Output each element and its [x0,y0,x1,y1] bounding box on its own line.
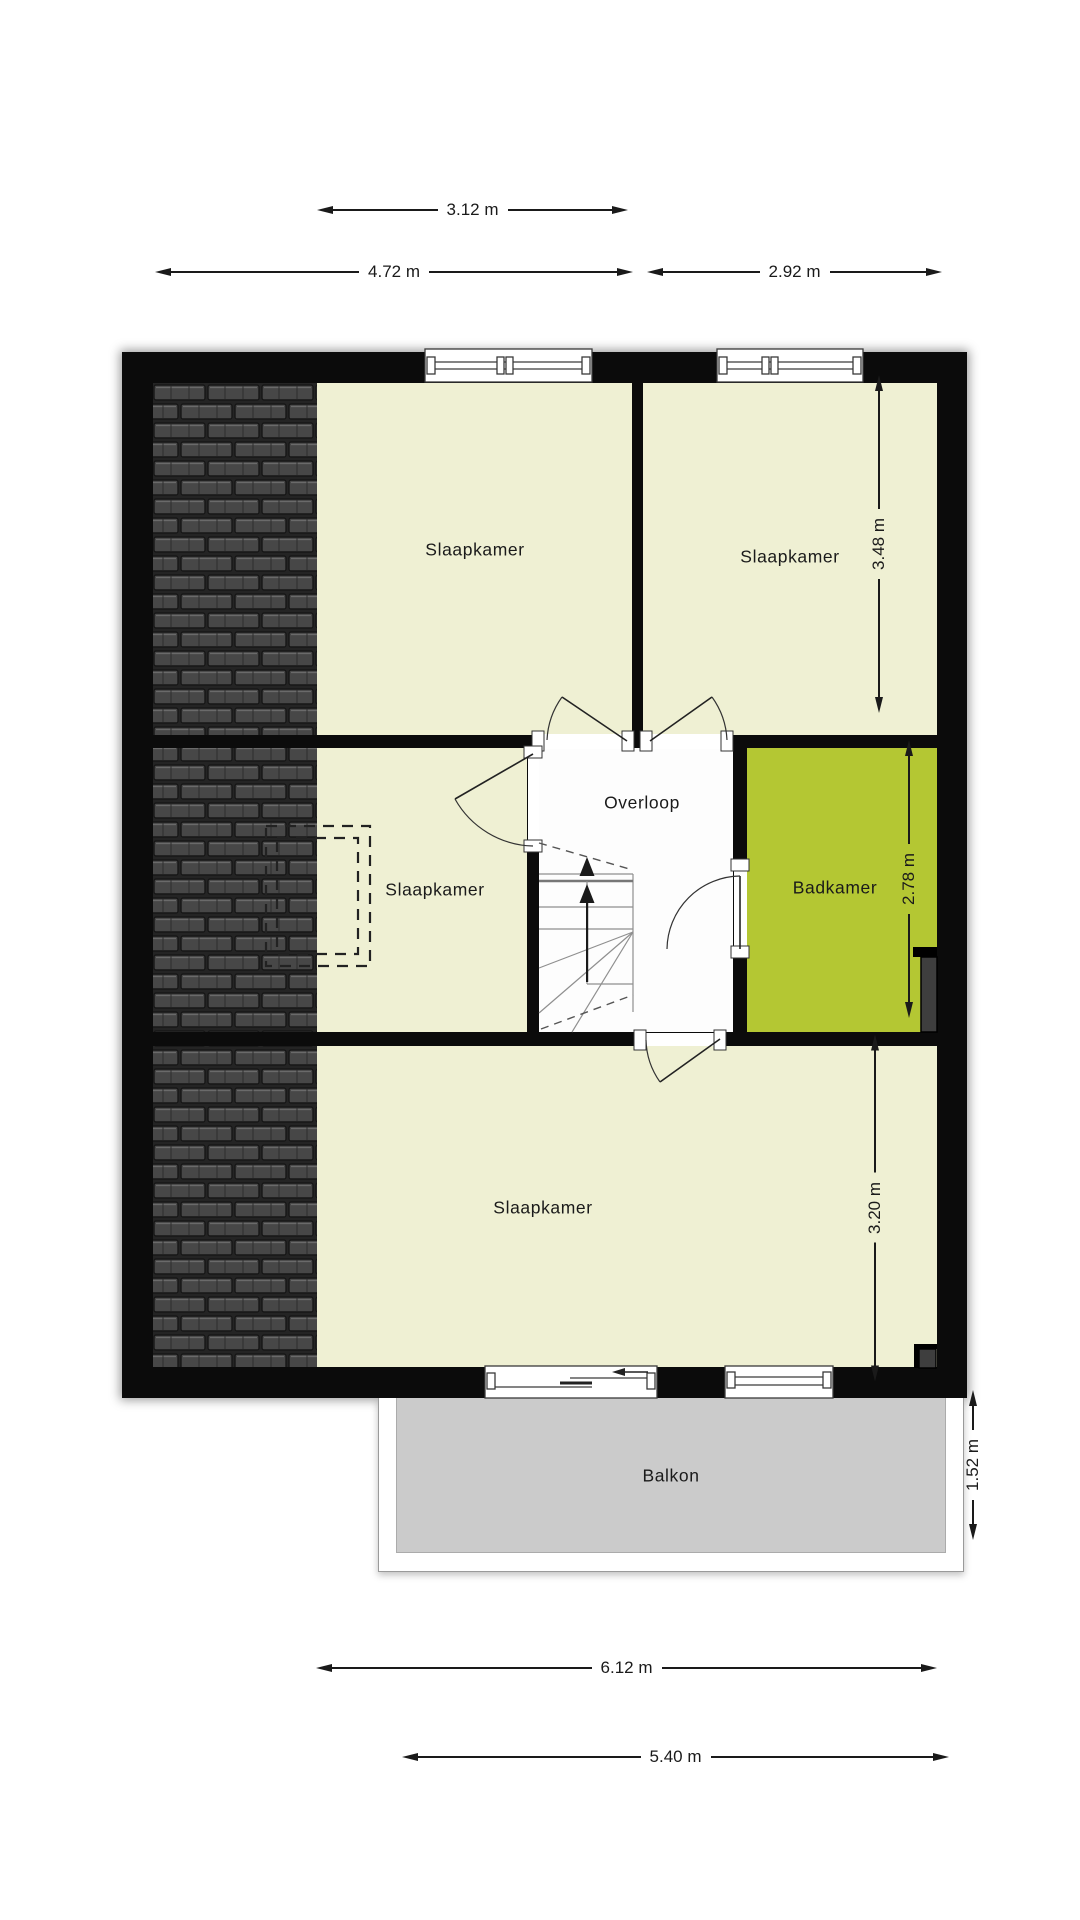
label-slaapkamer-mid-left: Slaapkamer [385,880,484,901]
window-top-left [425,349,592,382]
dim-label: 1.52 m [963,1430,983,1500]
window-top-right [717,349,863,382]
dim-label: 2.92 m [760,262,830,282]
door-badkamer [667,859,749,958]
window-bottom-right [725,1366,833,1398]
label-balkon: Balkon [642,1466,699,1487]
dim-top-left-width: 4.72 m [155,262,633,282]
stairs-up-arrow [580,857,595,982]
staircase [539,843,633,1032]
dim-label: 5.40 m [641,1747,711,1767]
dim-top-room-width: 3.12 m [317,200,628,220]
bottom-room-duct [914,1344,937,1368]
door-mid-left-bedroom [455,746,542,852]
label-slaapkamer-top-right: Slaapkamer [740,547,839,568]
dim-right-middle-height: 2.78 m [899,740,919,1018]
label-overloop: Overloop [604,793,680,814]
label-badkamer: Badkamer [793,878,878,899]
dim-right-top-height: 3.48 m [869,375,889,713]
label-slaapkamer-bottom: Slaapkamer [493,1198,592,1219]
dim-label: 4.72 m [359,262,429,282]
label-slaapkamer-top-left: Slaapkamer [425,540,524,561]
dim-right-bottom-height: 3.20 m [865,1035,885,1382]
dim-label: 3.12 m [438,200,508,220]
dim-top-right-width: 2.92 m [647,262,942,282]
floorplan-page: { "plan": { "rooms": [ {"id": "slaapkame… [0,0,1080,1920]
door-bottom-bedroom [634,1030,726,1082]
door-top-left-bedroom [532,697,634,751]
dim-bottom-balcony-width: 5.40 m [402,1747,949,1767]
dim-label: 3.20 m [865,1173,885,1243]
door-top-right-bedroom [640,697,733,751]
dim-bottom-house-width: 6.12 m [316,1658,937,1678]
dim-right-balcony-height: 1.52 m [963,1390,983,1540]
dim-label: 2.78 m [899,844,919,914]
roof-hatch [153,383,317,1367]
sliding-door-bottom [485,1366,657,1398]
dim-label: 3.48 m [869,509,889,579]
dim-label: 6.12 m [592,1658,662,1678]
